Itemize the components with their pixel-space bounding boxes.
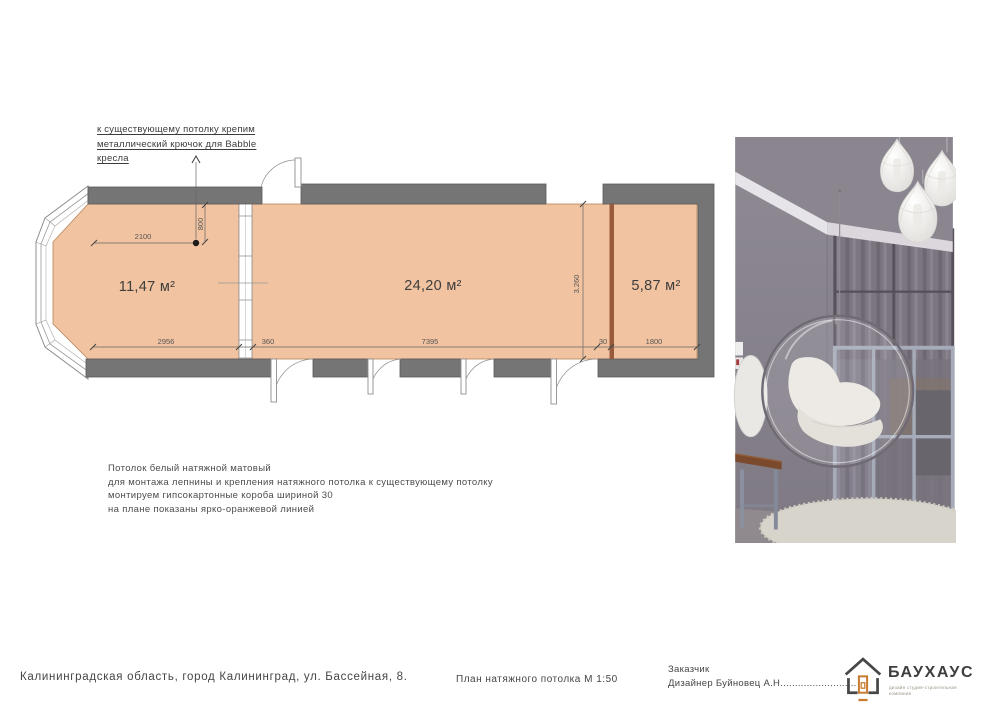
designer-signature-line: Дизайнер Буйновец А.Н...................… bbox=[668, 677, 857, 691]
area-bay: 11,47 м² bbox=[119, 279, 175, 295]
area-main: 24,20 м² bbox=[404, 278, 462, 294]
area-right: 5,87 м² bbox=[631, 278, 680, 294]
dim-2956: 2956 bbox=[158, 337, 175, 346]
notes-line: на плане показаны ярко-оранжевой линией bbox=[108, 503, 588, 517]
note-line: к существующему потолку крепим bbox=[97, 123, 287, 138]
ceiling-notes: Потолок белый натяжной матовый для монта… bbox=[108, 462, 588, 516]
bauhaus-house-icon bbox=[843, 653, 883, 707]
wall-bottom-3 bbox=[400, 359, 462, 377]
wall-top-left bbox=[88, 187, 262, 204]
door-bottom-4 bbox=[551, 359, 596, 404]
wall-bottom-1 bbox=[86, 359, 271, 377]
dim-7395: 7395 bbox=[422, 337, 439, 346]
wall-bottom-4 bbox=[494, 359, 552, 377]
notes-line: для монтажа лепнины и крепления натяжног… bbox=[108, 476, 588, 490]
dim-3260: 3.260 bbox=[572, 275, 581, 294]
dim-1800: 1800 bbox=[646, 337, 663, 346]
door-bottom-1 bbox=[271, 359, 313, 402]
brand-subtitle-line: компания bbox=[889, 691, 957, 697]
drawing-title: План натяжного потолка М 1:50 bbox=[456, 674, 618, 685]
dim-2100: 2100 bbox=[135, 232, 152, 241]
client-block: Заказчик Дизайнер Буйновец А.Н..........… bbox=[668, 663, 857, 691]
room-photo-render bbox=[732, 137, 956, 543]
client-label: Заказчик bbox=[668, 663, 857, 677]
hook-point bbox=[193, 240, 199, 246]
dim-360: 360 bbox=[262, 337, 275, 346]
gypsum-box-line bbox=[610, 204, 615, 359]
ceiling-plan: 2100 800 2956 360 7395 30 1800 3.260 11,… bbox=[30, 150, 720, 420]
door-top bbox=[261, 158, 301, 187]
notes-line: Потолок белый натяжной матовый bbox=[108, 462, 588, 476]
brand-subtitle-line: дизайн студия-строительная bbox=[889, 685, 957, 691]
dim-800: 800 bbox=[196, 218, 205, 231]
room-main-ceiling bbox=[252, 204, 697, 359]
door-bottom-2 bbox=[368, 359, 401, 394]
wall-bottom-2 bbox=[313, 359, 368, 377]
wall-top-main bbox=[301, 184, 546, 204]
glass-partition bbox=[239, 189, 252, 358]
notes-line: монтируем гипсокартонные короба шириной … bbox=[108, 489, 588, 503]
door-bottom-3 bbox=[461, 359, 494, 394]
brand-name: БАУХАУС bbox=[888, 664, 974, 682]
bubble-chair bbox=[762, 316, 913, 467]
project-address: Калининградская область, город Калинингр… bbox=[20, 671, 408, 683]
room-photo bbox=[732, 137, 956, 543]
brand-subtitle: дизайн студия-строительная компания bbox=[889, 685, 957, 696]
dim-30: 30 bbox=[599, 337, 607, 346]
leader-arrowhead bbox=[192, 156, 200, 163]
